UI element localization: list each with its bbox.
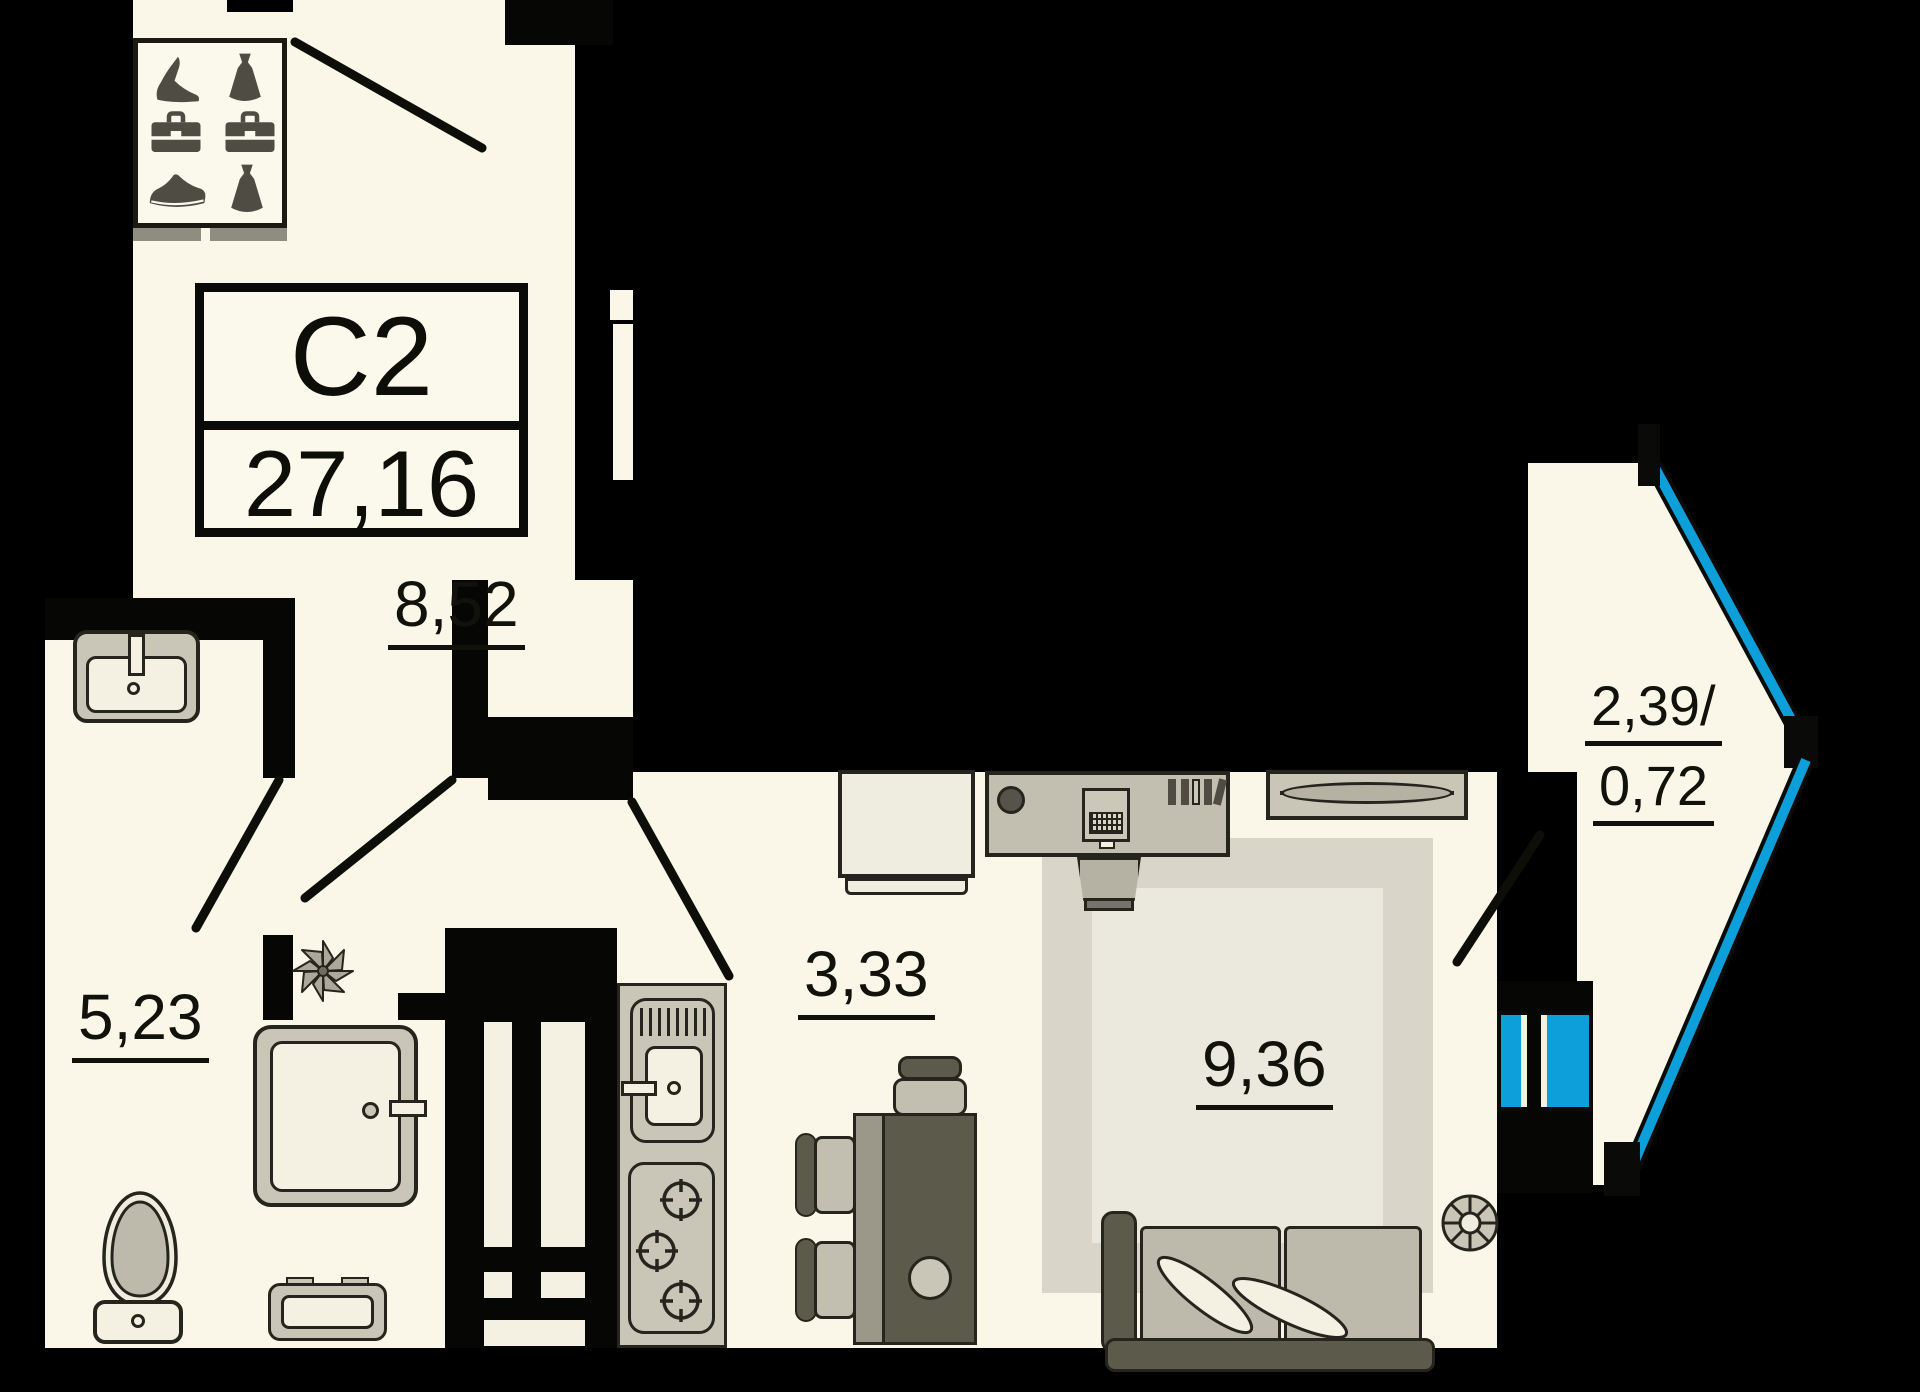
stool (893, 1078, 967, 1116)
kitchen-sink-vent-lines (640, 1008, 706, 1036)
toilet-tank-button (131, 1314, 145, 1328)
shaft-vent-slot (610, 290, 633, 320)
shaft-slot-1 (484, 1022, 512, 1247)
office-chair (1077, 857, 1141, 901)
sink-drain (127, 682, 140, 695)
unit-label-box: С2 27,16 (195, 283, 528, 537)
shaft-slot-2 (541, 1022, 585, 1247)
hallway-area-label: 8,52 (388, 572, 525, 650)
wardrobe-base-2 (210, 228, 287, 241)
desk-knob (997, 786, 1025, 814)
plant-icon (290, 938, 356, 1004)
wardrobe-base (133, 228, 201, 241)
shaft-vent-slot-2 (613, 324, 633, 480)
stool-top (898, 1056, 962, 1080)
floor-plan: С2 27,16 (0, 0, 1920, 1392)
bath-mat-inner (281, 1295, 374, 1329)
shaft-wall (445, 928, 617, 1348)
chair-seat-2 (814, 1241, 856, 1319)
entry-opening (293, 0, 505, 14)
total-area: 27,16 (204, 421, 519, 538)
burner-icon-3 (655, 1275, 707, 1327)
chair-seat (814, 1136, 856, 1214)
balcony-coef-label: 0,72 (1593, 758, 1714, 826)
kitchen-sink-drain (667, 1081, 681, 1095)
shower-handle-knob (362, 1102, 379, 1119)
bathroom-area-label: 5,23 (72, 985, 209, 1063)
wall-stub-bath (263, 935, 293, 1020)
shaft-notch-2 (541, 1272, 585, 1298)
top-left-notch (133, 0, 227, 12)
balcony-wall-upper-block (1497, 981, 1593, 1013)
balcony-wall-lower-block (1497, 1109, 1593, 1193)
faucet-icon (128, 634, 145, 676)
dining-table-edge (853, 1113, 885, 1345)
shaft-wall-arm (398, 993, 445, 1020)
books (1168, 779, 1176, 805)
living-area-label: 9,36 (1196, 1032, 1333, 1110)
office-chair-base (1084, 898, 1134, 911)
wall-pillar-a (263, 598, 295, 778)
burner-icon (655, 1174, 707, 1226)
dress-icon (222, 52, 268, 104)
shaft-notch-1 (484, 1272, 512, 1298)
burner-icon-2 (631, 1225, 683, 1277)
corridor-recess-floor (575, 580, 633, 717)
fridge (838, 770, 975, 878)
books-4 (1204, 779, 1212, 805)
sofa-pillows (1120, 1240, 1450, 1360)
briefcase-icon-2 (222, 108, 278, 154)
fridge-base (845, 878, 968, 895)
entry-wall-chunk (505, 0, 613, 45)
kitchen-recess-wall (488, 717, 633, 800)
shower-tray (270, 1041, 401, 1192)
laptop-trackpad (1099, 840, 1115, 849)
heel-icon (150, 55, 206, 103)
tv-icon (1281, 782, 1453, 804)
laptop-keyboard (1089, 812, 1123, 834)
plate (908, 1256, 952, 1300)
dress-icon-3 (224, 162, 270, 216)
fan-icon (1439, 1192, 1501, 1254)
balcony-area-label: 2,39/ (1585, 678, 1722, 746)
unit-label: С2 (204, 292, 519, 421)
briefcase-icon (148, 108, 204, 154)
books-3 (1192, 779, 1200, 805)
shower-handle-bar (389, 1100, 427, 1117)
balcony-door-frame-2 (1541, 1015, 1547, 1107)
kitchen-faucet-icon (621, 1081, 657, 1096)
toilet (96, 1190, 184, 1310)
shaft-bottom-slot (484, 1320, 585, 1346)
balcony-door-mullion (1527, 1011, 1541, 1111)
sneaker-icon (146, 166, 210, 214)
kitchen-area-label: 3,33 (798, 942, 935, 1020)
books-2 (1181, 779, 1189, 805)
